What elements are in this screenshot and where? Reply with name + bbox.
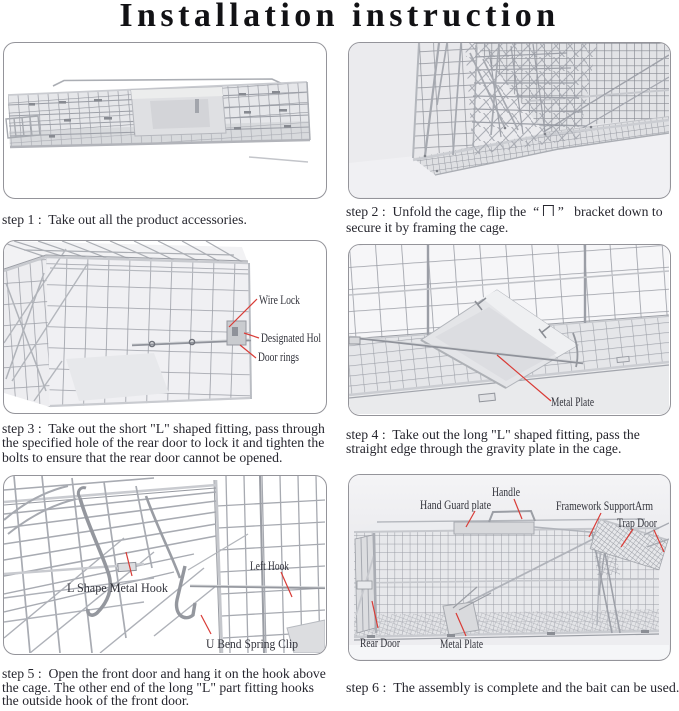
svg-text:Wire Lock: Wire Lock [259,293,301,307]
svg-text:Trap Door: Trap Door [617,516,658,530]
svg-text:Metal Plate: Metal Plate [551,395,594,409]
svg-text:Left Hook: Left Hook [250,559,290,573]
svg-text:Hand Guard plate: Hand Guard plate [420,498,491,512]
svg-text:Metal Plate: Metal Plate [440,637,483,651]
svg-text:Framework SupportArm: Framework SupportArm [556,499,653,513]
svg-text:Handle: Handle [492,485,520,499]
svg-text:L Shape Metal Hook: L Shape Metal Hook [67,580,168,595]
svg-text:Designated Hol: Designated Hol [261,331,321,345]
svg-text:Rear Door: Rear Door [360,636,401,650]
svg-text:U Bend Spring Clip: U Bend Spring Clip [206,636,298,651]
svg-text:Door rings: Door rings [258,350,299,364]
